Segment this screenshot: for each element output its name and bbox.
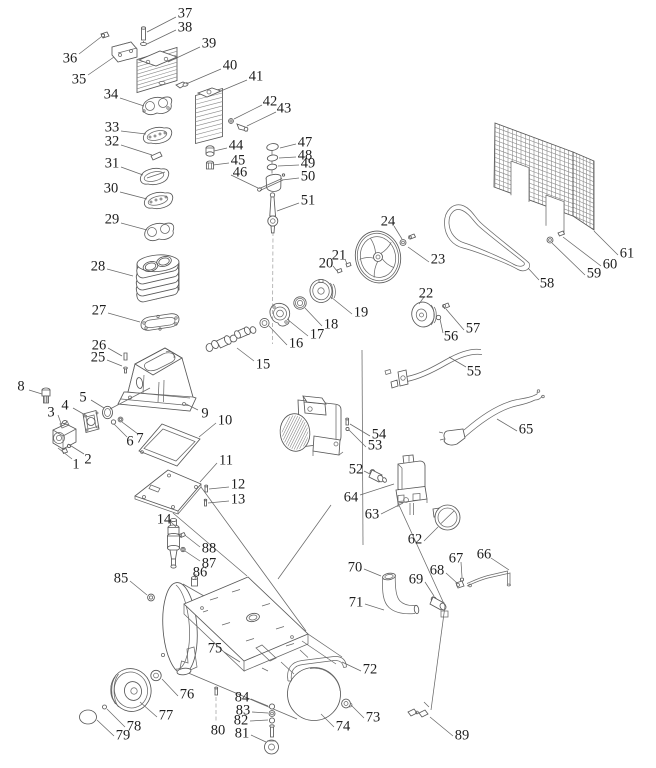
svg-text:53: 53 [368, 438, 383, 454]
svg-text:77: 77 [159, 708, 174, 724]
svg-text:21: 21 [332, 248, 347, 264]
svg-text:15: 15 [256, 357, 271, 373]
svg-text:61: 61 [620, 246, 635, 262]
svg-text:38: 38 [178, 20, 193, 36]
svg-text:65: 65 [519, 422, 534, 438]
svg-text:74: 74 [336, 719, 351, 735]
svg-text:66: 66 [477, 547, 492, 563]
svg-text:46: 46 [233, 165, 248, 181]
svg-text:81: 81 [235, 726, 250, 742]
svg-text:86: 86 [193, 565, 208, 581]
svg-text:27: 27 [92, 303, 107, 319]
svg-text:16: 16 [289, 336, 304, 352]
svg-text:12: 12 [231, 477, 246, 493]
svg-text:68: 68 [430, 563, 445, 579]
svg-text:30: 30 [104, 181, 119, 197]
svg-text:4: 4 [61, 398, 69, 414]
svg-text:41: 41 [249, 69, 264, 85]
svg-text:58: 58 [540, 276, 555, 292]
svg-text:13: 13 [231, 492, 246, 508]
svg-text:24: 24 [381, 214, 396, 230]
svg-text:88: 88 [202, 541, 217, 557]
svg-text:1: 1 [72, 457, 79, 473]
svg-text:22: 22 [419, 286, 434, 302]
svg-text:80: 80 [211, 723, 226, 739]
svg-text:51: 51 [301, 193, 316, 209]
svg-text:56: 56 [444, 329, 459, 345]
svg-text:31: 31 [105, 156, 120, 172]
svg-text:14: 14 [157, 512, 172, 528]
svg-text:10: 10 [218, 413, 233, 429]
svg-text:32: 32 [105, 134, 120, 150]
svg-text:75: 75 [208, 641, 223, 657]
svg-text:25: 25 [91, 350, 106, 366]
svg-text:55: 55 [467, 364, 482, 380]
svg-text:42: 42 [263, 94, 278, 110]
svg-text:2: 2 [84, 452, 91, 468]
svg-text:60: 60 [603, 257, 618, 273]
svg-text:23: 23 [431, 252, 446, 268]
svg-text:67: 67 [449, 551, 464, 567]
svg-text:7: 7 [136, 431, 143, 447]
svg-text:72: 72 [363, 662, 378, 678]
svg-text:29: 29 [105, 212, 120, 228]
svg-text:11: 11 [219, 453, 233, 469]
svg-text:76: 76 [180, 687, 195, 703]
svg-text:69: 69 [409, 572, 424, 588]
svg-text:39: 39 [202, 36, 217, 52]
svg-text:5: 5 [79, 390, 86, 406]
svg-text:40: 40 [223, 58, 238, 74]
svg-text:57: 57 [466, 321, 481, 337]
svg-text:34: 34 [104, 87, 119, 103]
svg-text:71: 71 [349, 595, 364, 611]
svg-text:70: 70 [348, 560, 363, 576]
svg-text:36: 36 [63, 51, 78, 67]
svg-text:89: 89 [455, 728, 470, 744]
svg-text:8: 8 [17, 379, 24, 395]
svg-text:85: 85 [114, 571, 129, 587]
svg-text:19: 19 [354, 305, 369, 321]
svg-text:59: 59 [587, 266, 602, 282]
svg-text:63: 63 [365, 507, 380, 523]
svg-text:64: 64 [344, 490, 359, 506]
svg-text:52: 52 [349, 462, 364, 478]
svg-text:79: 79 [116, 728, 131, 744]
svg-text:3: 3 [47, 405, 54, 421]
svg-text:18: 18 [324, 317, 339, 333]
svg-text:9: 9 [201, 406, 208, 422]
svg-text:50: 50 [301, 169, 316, 185]
svg-text:6: 6 [126, 434, 133, 450]
svg-text:44: 44 [229, 138, 244, 154]
svg-text:28: 28 [91, 259, 106, 275]
svg-text:43: 43 [277, 101, 292, 117]
svg-text:73: 73 [366, 710, 381, 726]
svg-text:35: 35 [72, 72, 87, 88]
svg-text:62: 62 [408, 532, 423, 548]
svg-text:17: 17 [310, 327, 325, 343]
